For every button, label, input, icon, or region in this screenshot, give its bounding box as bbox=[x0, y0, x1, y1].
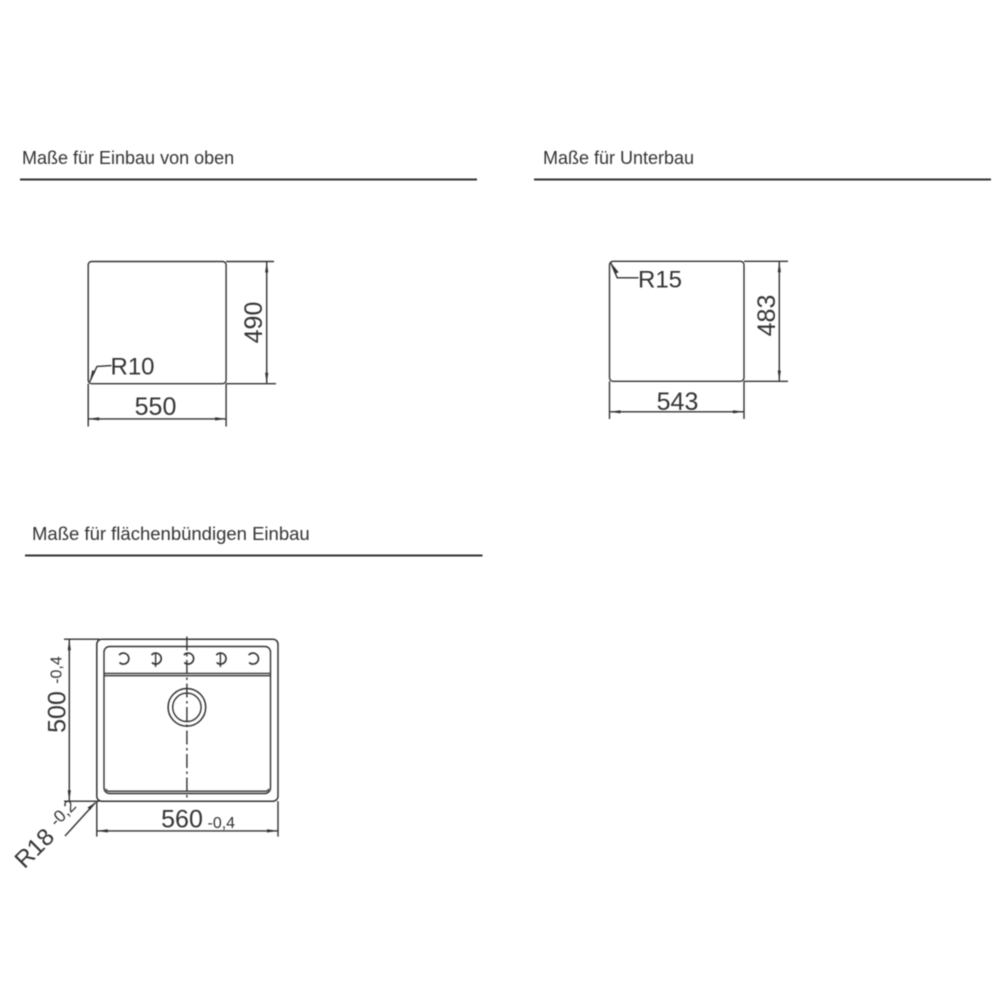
svg-text:560: 560 bbox=[161, 806, 203, 834]
svg-text:-0,4: -0,4 bbox=[49, 656, 66, 684]
svg-text:R15: R15 bbox=[638, 267, 682, 294]
svg-text:483: 483 bbox=[753, 295, 781, 337]
svg-text:Maße für Unterbau: Maße für Unterbau bbox=[543, 148, 694, 168]
svg-text:490: 490 bbox=[240, 302, 268, 344]
svg-text:-0,4: -0,4 bbox=[208, 815, 236, 832]
svg-text:500: 500 bbox=[44, 691, 72, 733]
svg-text:R10: R10 bbox=[111, 354, 155, 381]
svg-text:Maße für Einbau von oben: Maße für Einbau von oben bbox=[22, 148, 234, 168]
svg-text:550: 550 bbox=[135, 393, 177, 421]
svg-text:543: 543 bbox=[657, 388, 699, 416]
svg-text:Maße für flächenbündigen Einba: Maße für flächenbündigen Einbau bbox=[32, 523, 310, 544]
